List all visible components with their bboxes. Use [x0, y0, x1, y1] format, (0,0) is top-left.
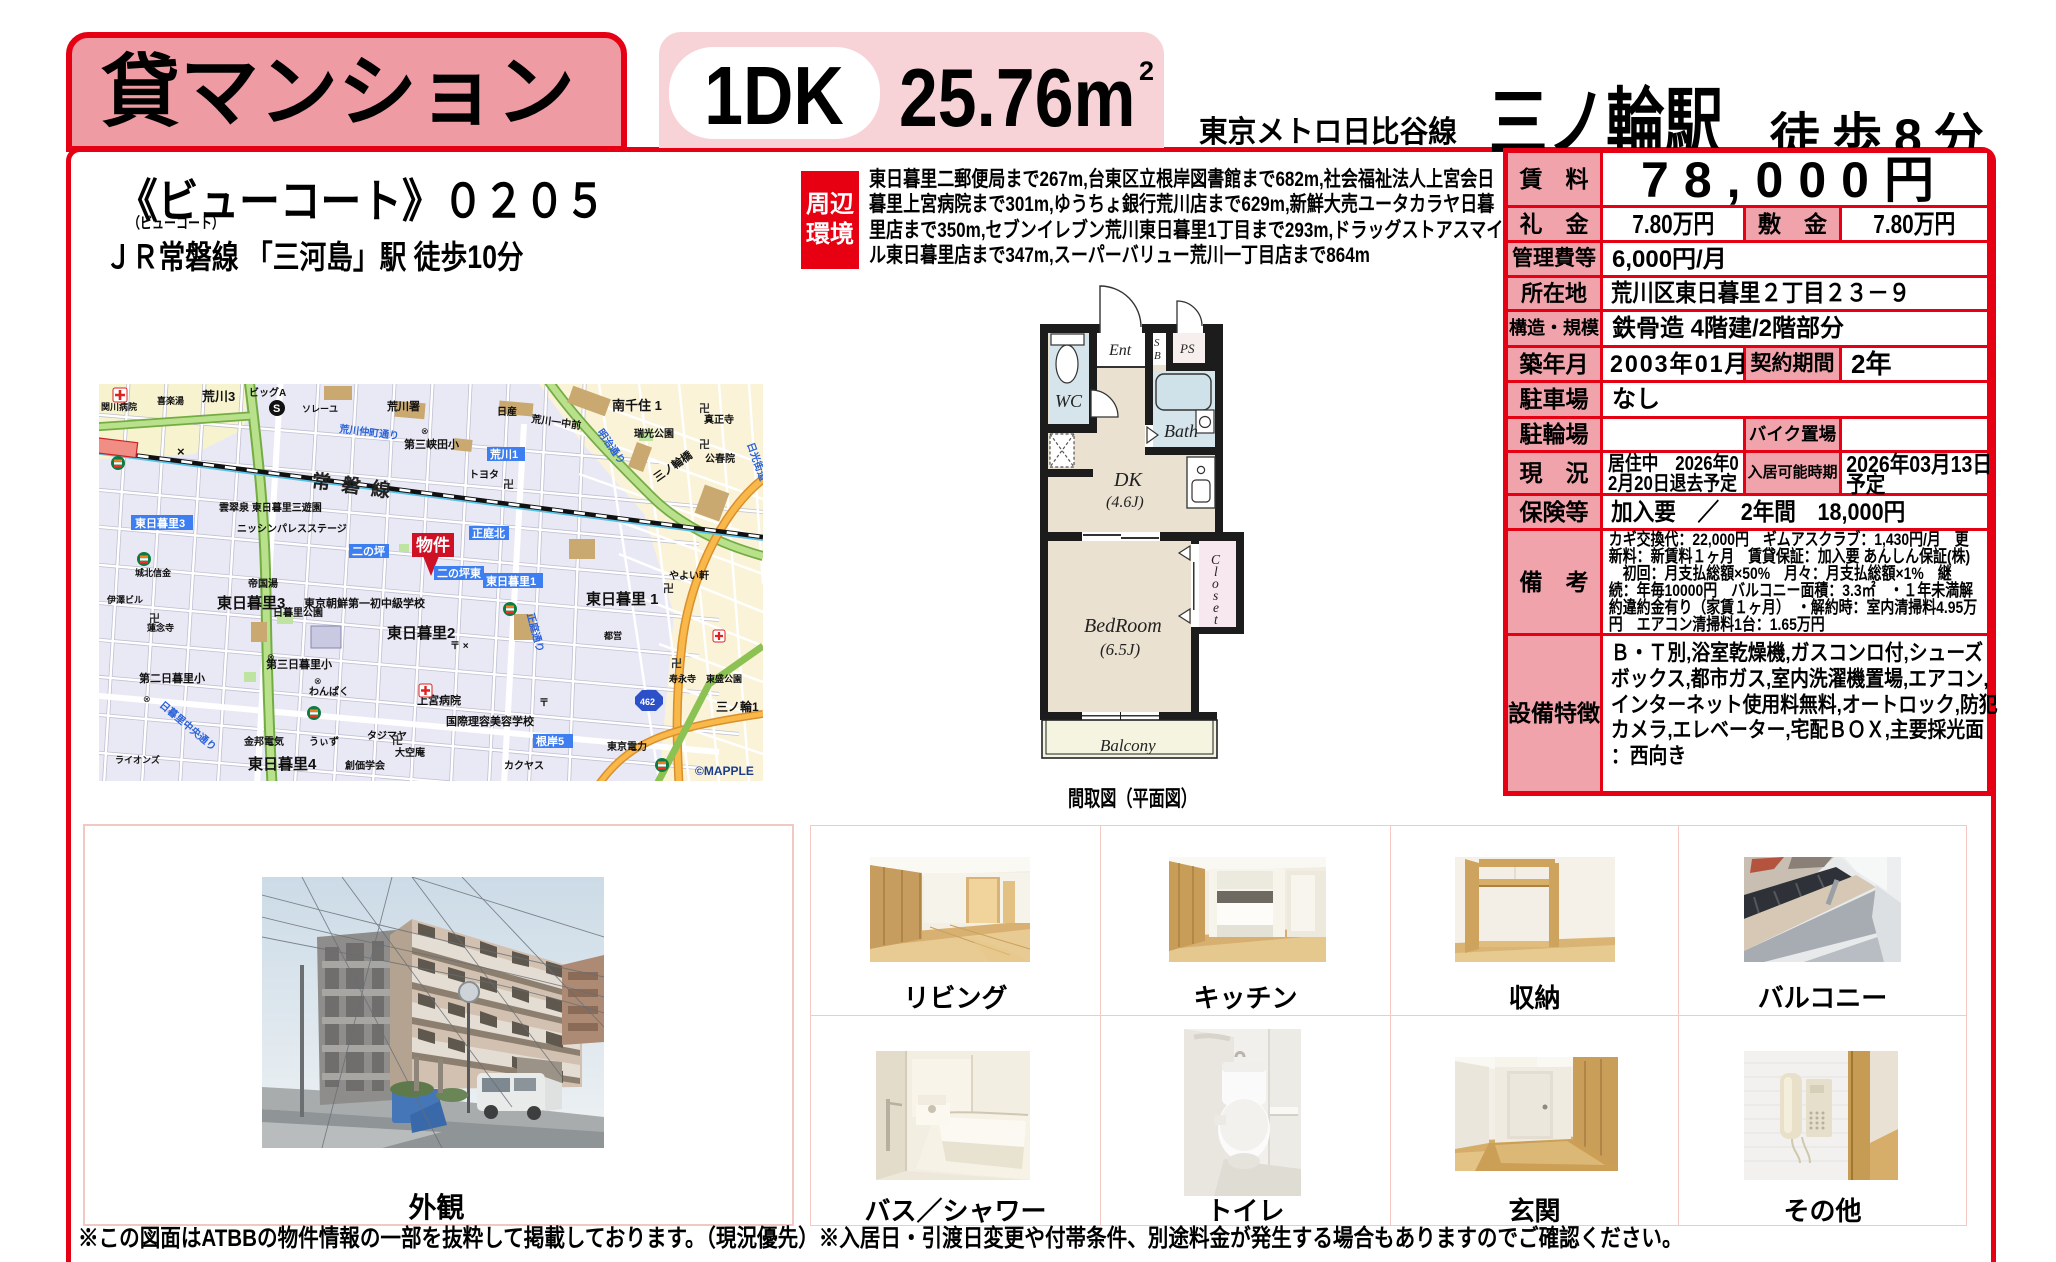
svg-text:S: S [1154, 337, 1160, 349]
svg-text:やよい軒: やよい軒 [669, 569, 709, 582]
svg-text:S: S [273, 403, 280, 415]
svg-text:喜楽湯: 喜楽湯 [157, 395, 184, 406]
svg-text:カクヤス: カクヤス [504, 760, 544, 772]
svg-text:日産: 日産 [497, 405, 517, 418]
svg-text:第三峡田小: 第三峡田小 [404, 437, 459, 451]
svg-text:東日暮里3: 東日暮里3 [135, 516, 185, 530]
svg-text:伊澤ビル: 伊澤ビル [106, 594, 143, 605]
svg-text:国際理容美容学校: 国際理容美容学校 [446, 714, 535, 728]
svg-text:©MAPPLE: ©MAPPLE [695, 764, 754, 778]
svg-text:Balcony: Balcony [1100, 736, 1156, 755]
svg-text:創価学会: 創価学会 [344, 759, 385, 772]
svg-text:卍: 卍 [699, 438, 710, 451]
svg-text:PS: PS [1179, 341, 1195, 356]
svg-text:卍: 卍 [149, 612, 160, 625]
svg-text:Ent: Ent [1108, 342, 1132, 359]
svg-text:二の坪東: 二の坪東 [437, 566, 482, 580]
svg-text:WC: WC [1055, 391, 1083, 411]
svg-text:ライオンズ: ライオンズ [115, 754, 160, 765]
svg-text:Bath: Bath [1164, 421, 1198, 441]
svg-text:卍: 卍 [503, 478, 514, 491]
svg-text:東日暮里2: 東日暮里2 [387, 624, 455, 642]
svg-text:城北信金: 城北信金 [135, 567, 172, 578]
svg-text:大空庵: 大空庵 [395, 746, 426, 759]
svg-text:公春院: 公春院 [705, 452, 735, 465]
svg-text:日暮里公園: 日暮里公園 [273, 606, 323, 619]
svg-text:わんぱく: わんぱく [309, 685, 349, 698]
svg-text:DK: DK [1113, 469, 1143, 491]
svg-text:B: B [1154, 350, 1161, 362]
svg-text:根岸5: 根岸5 [536, 734, 564, 748]
svg-text:東日暮里1: 東日暮里1 [486, 574, 536, 588]
svg-text:BedRoom: BedRoom [1084, 615, 1162, 637]
svg-text:東日暮里 1: 東日暮里 1 [586, 590, 659, 608]
svg-text:卍: 卍 [663, 582, 674, 595]
svg-text:雲翠泉 東日暮里三遊園: 雲翠泉 東日暮里三遊園 [219, 501, 322, 514]
svg-text:⊗: ⊗ [267, 652, 275, 662]
svg-text:462: 462 [640, 697, 655, 707]
svg-text:第三日暮里小: 第三日暮里小 [266, 657, 332, 671]
svg-text:×: × [177, 444, 185, 459]
svg-text:荒川3: 荒川3 [201, 389, 235, 404]
svg-text:卍: 卍 [392, 734, 403, 747]
svg-text:〒 ×: 〒 × [450, 640, 469, 652]
svg-text:南千住 1: 南千住 1 [612, 398, 662, 413]
svg-text:〒: 〒 [539, 697, 549, 709]
svg-text:ニッシンパレスステージ: ニッシンパレスステージ [237, 523, 347, 535]
svg-text:都営: 都営 [603, 630, 622, 641]
svg-text:卍: 卍 [699, 402, 710, 415]
svg-text:金邦電気: 金邦電気 [243, 735, 284, 748]
svg-text:卍: 卍 [671, 657, 682, 670]
svg-text:⊗: ⊗ [314, 676, 322, 686]
svg-text:⊗: ⊗ [143, 694, 151, 704]
svg-text:(4.6J): (4.6J) [1106, 494, 1144, 511]
svg-text:関川病院: 関川病院 [101, 401, 137, 412]
svg-text:トヨタ: トヨタ [469, 469, 499, 481]
svg-text:ビッグA: ビッグA [249, 386, 286, 399]
svg-text:瑞光公園: 瑞光公園 [634, 427, 674, 440]
svg-text:正庭北: 正庭北 [472, 526, 505, 540]
svg-text:寿永寺: 寿永寺 [669, 673, 696, 684]
svg-text:東盛公園: 東盛公園 [706, 673, 742, 684]
svg-text:うぃず: うぃず [309, 735, 339, 748]
svg-text:帝国湯: 帝国湯 [248, 577, 278, 590]
svg-text:物件: 物件 [416, 535, 450, 555]
svg-text:三ノ輪1: 三ノ輪1 [716, 699, 759, 714]
svg-text:荒川1: 荒川1 [489, 447, 518, 461]
svg-text:二の坪: 二の坪 [352, 545, 385, 558]
svg-text:⊗: ⊗ [421, 426, 429, 436]
svg-text:第二日暮里小: 第二日暮里小 [139, 671, 205, 685]
svg-text:東京電力: 東京電力 [607, 740, 647, 753]
svg-text:ソレーユ: ソレーユ [302, 404, 338, 414]
svg-text:東日暮里4: 東日暮里4 [248, 755, 317, 773]
svg-text:(6.5J): (6.5J) [1100, 640, 1140, 659]
svg-text:荒川署: 荒川署 [386, 399, 420, 413]
